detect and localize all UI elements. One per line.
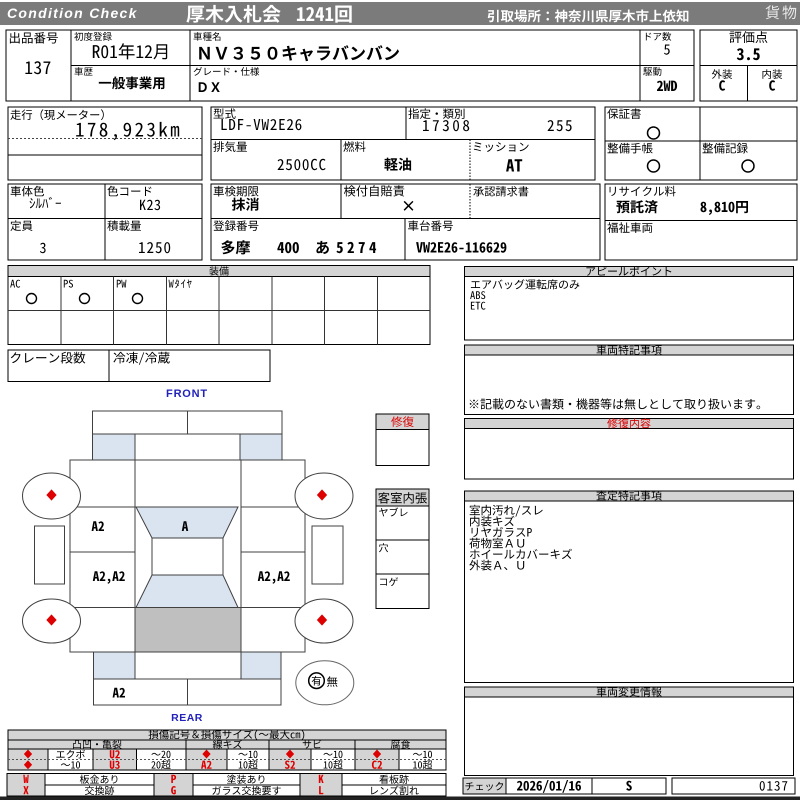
svg-text:REAR: REAR	[171, 712, 203, 724]
svg-text:FRONT: FRONT	[166, 388, 208, 400]
svg-text:Condition Check: Condition Check	[7, 5, 138, 21]
